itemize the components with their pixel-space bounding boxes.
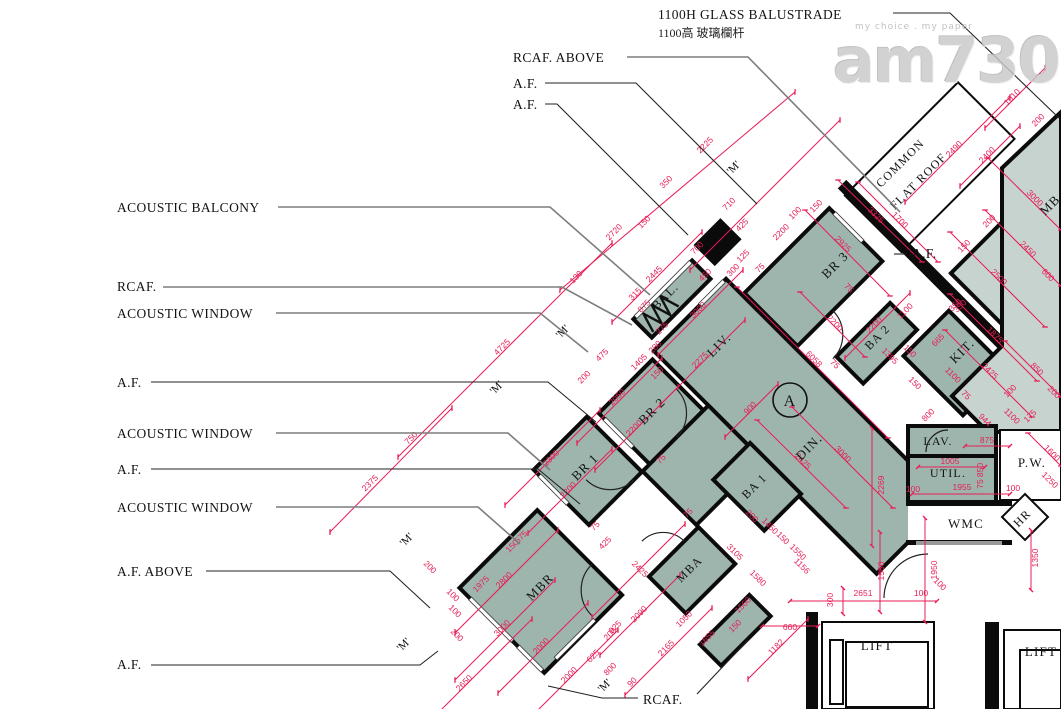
dimension-value: 100 [786,204,803,221]
dimension-value: 125 [734,247,751,264]
dimension-value: 150 [807,197,824,214]
dimension-value: 2000 [559,664,580,685]
callout-leader [278,207,650,295]
dimension-value: 2651 [854,588,873,598]
dimension-value: 2375 [360,472,381,493]
callout-leader [545,83,757,204]
dimension-value: 300 [825,593,835,607]
room-label-wmc: WMC [948,516,984,531]
callout-label-top: A.F. [513,76,538,91]
dimension-value: 1010 [1002,86,1023,107]
dimension-value: 1550 [876,561,886,580]
dimension-value: 100 [1006,483,1020,493]
callout-leader [206,571,430,608]
callout-label-left: A.F. [117,375,142,390]
dimension-value: 2269 [876,475,886,494]
flat-roof-af-label: A.F. [912,246,937,261]
callout-label-top: A.F. [513,97,538,112]
dimension-value: 200 [422,558,439,575]
dimension-value: 425 [596,534,613,551]
callout-leader [151,382,596,422]
floor-plan-page: 2225350272015071042522001001502925332524… [0,0,1061,709]
dimension-value: 1350 [1030,548,1040,567]
wall [906,500,1012,506]
callout-label-left: A.F. [117,462,142,477]
dimension-value: 2650 [454,672,475,693]
callout-label-bottom: RCAF. [643,692,683,707]
dimension-value: 1955 [953,482,972,492]
callout-leader [548,686,638,698]
dimension-value: 2165 [656,637,677,658]
dimension-value: 850 [975,463,985,477]
dimension-value: 1050 [674,608,695,629]
window-marker: 'M' [395,636,413,654]
callout-label-left: ACOUSTIC WINDOW [117,306,253,321]
wmc-vent-strip [916,541,1002,545]
callout-label-left: ACOUSTIC BALCONY [117,200,260,215]
callout-label-top: 1100H GLASS BALUSTRADE [658,7,842,22]
callout-leader [151,651,438,665]
dimension-value: 625 [584,647,601,664]
dimension-value: 800 [919,406,936,423]
callout-leader [276,507,520,544]
dimension-value: 150 [635,213,652,230]
room-label-lav-: LAV. [923,434,952,448]
dimension-value: 90 [625,675,639,689]
dimension-value: 475 [593,346,610,363]
dimension-value: 300 [724,261,741,278]
grid-label: A [784,393,797,410]
dimension-value: 75 [975,479,985,489]
room-label-p-w-: P.W. [1018,455,1046,470]
callout-label-left: A.F. ABOVE [117,564,193,579]
dimension-value: 1580 [748,568,769,589]
dimension-value: 800 [601,660,618,677]
window-marker: 'M' [398,531,416,549]
room-label-lift: LIFT [861,638,893,653]
callout-label-top-chinese: 1100高 玻璃欄杆 [658,25,745,40]
dimension-value: 710 [720,195,737,212]
dimension-value: 1182 [766,637,786,657]
dimension-value: 350 [657,173,674,190]
wall [985,622,999,709]
dimension-value: 1100 [895,301,915,321]
dimension-value: 2200 [771,221,792,242]
dimension-value: 100 [914,588,928,598]
dimension-value: 1005 [941,456,960,466]
callout-leader [545,104,688,235]
wall [806,612,818,709]
dimension-value: 875 [980,435,994,445]
callout-label-left: RCAF. [117,279,157,294]
dimension-value: 100 [906,484,920,494]
dimension-value: 2090 [629,603,650,624]
callout-label-left: A.F. [117,657,142,672]
dimension-value: 200 [449,626,466,643]
dimension-value: 1156 [792,556,812,576]
dimension-value: 200 [575,368,592,385]
dimension-value: 2445 [644,263,665,284]
lift-rail-1 [830,640,843,704]
window-marker: 'M' [596,677,614,695]
dimension-value: 100 [447,602,464,619]
callout-label-top: RCAF. ABOVE [513,50,604,65]
callout-label-left: ACOUSTIC WINDOW [117,426,253,441]
dimension-value: 425 [733,216,750,233]
floor-plan-drawing: 2225350272015071042522001001502925332524… [0,0,1061,709]
dimension-value: 660 [783,622,797,632]
dimension-value: 130 [567,268,584,285]
dimension-value: 150 [907,374,924,391]
room-label-lift: LIFT [1025,644,1057,659]
dimension-value: 4725 [492,336,513,357]
room-label-util-: UTIL. [930,466,966,480]
callout-leader [276,313,588,352]
callout-label-left: ACOUSTIC WINDOW [117,500,253,515]
